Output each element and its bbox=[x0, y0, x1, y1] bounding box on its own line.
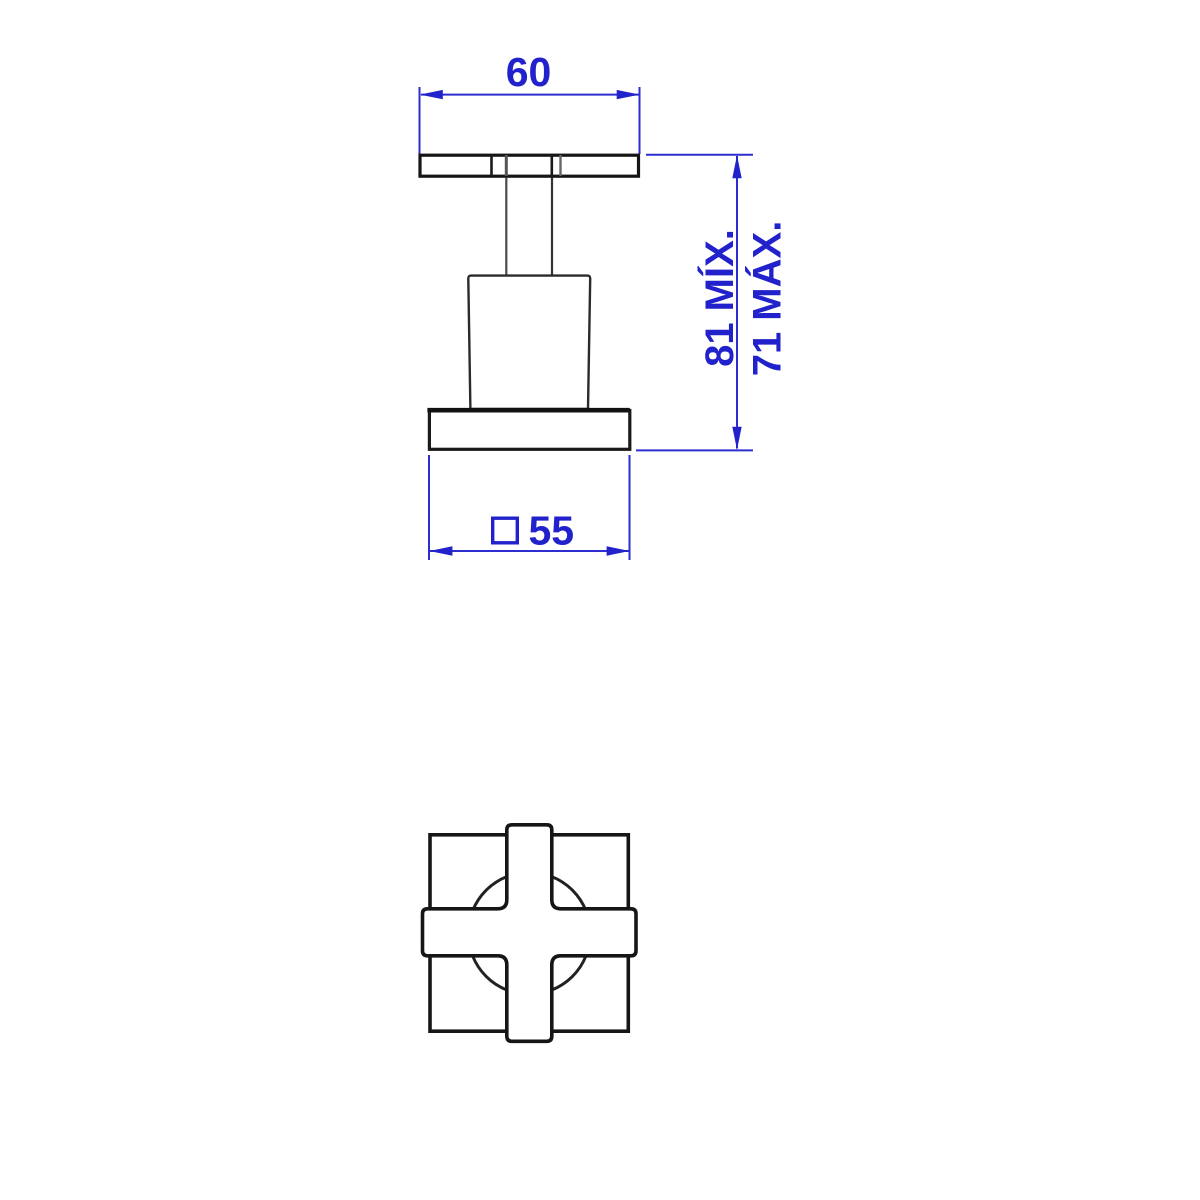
svg-text:71 MÁX.: 71 MÁX. bbox=[745, 221, 790, 377]
svg-text:60: 60 bbox=[506, 49, 552, 95]
svg-text:55: 55 bbox=[528, 508, 574, 554]
svg-text:81 MÍX.: 81 MÍX. bbox=[697, 229, 742, 367]
